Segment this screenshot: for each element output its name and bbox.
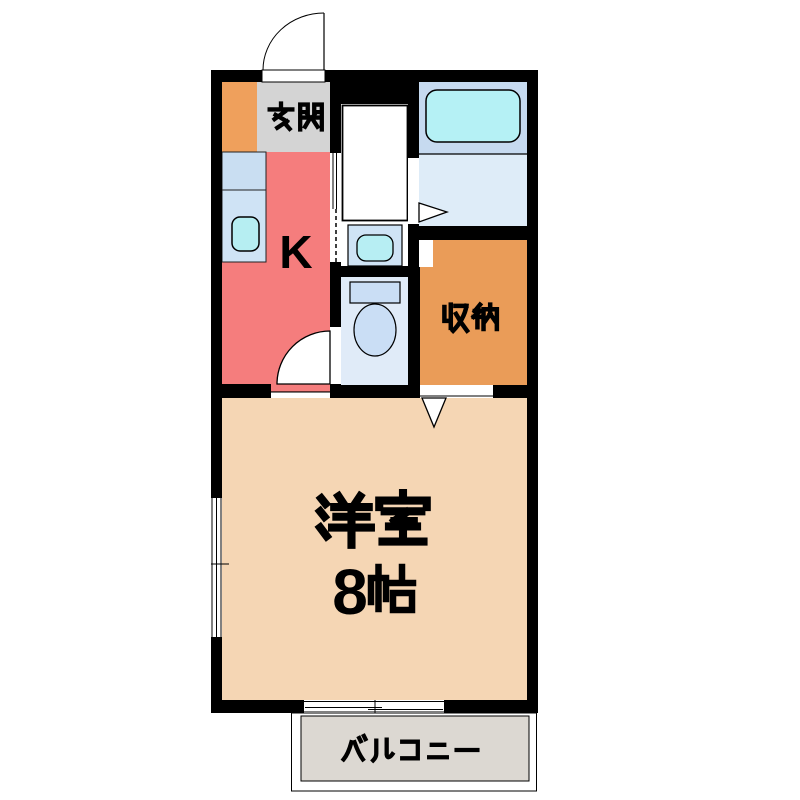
svg-text:8: 8 xyxy=(332,556,368,628)
svg-text:K: K xyxy=(279,226,312,278)
